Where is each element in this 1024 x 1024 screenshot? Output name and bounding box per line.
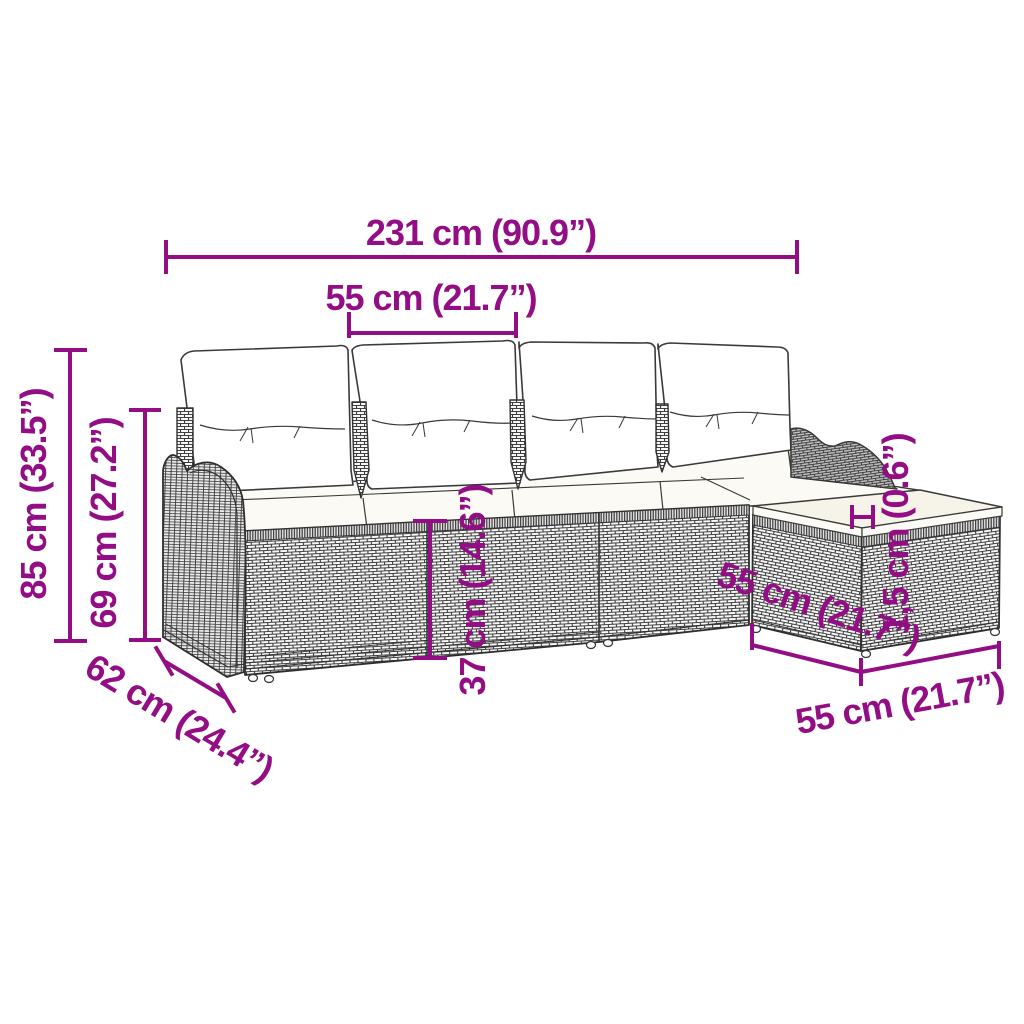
svg-text:37 cm (14.6”): 37 cm (14.6”): [452, 484, 493, 695]
svg-text:55 cm (21.7”): 55 cm (21.7”): [325, 277, 536, 318]
svg-text:69 cm (27.2”): 69 cm (27.2”): [83, 417, 124, 628]
svg-text:231 cm (90.9”): 231 cm (90.9”): [366, 212, 596, 253]
svg-text:1,5 cm (0.6”): 1,5 cm (0.6”): [875, 433, 916, 634]
svg-text:85 cm (33.5”): 85 cm (33.5”): [13, 388, 54, 599]
